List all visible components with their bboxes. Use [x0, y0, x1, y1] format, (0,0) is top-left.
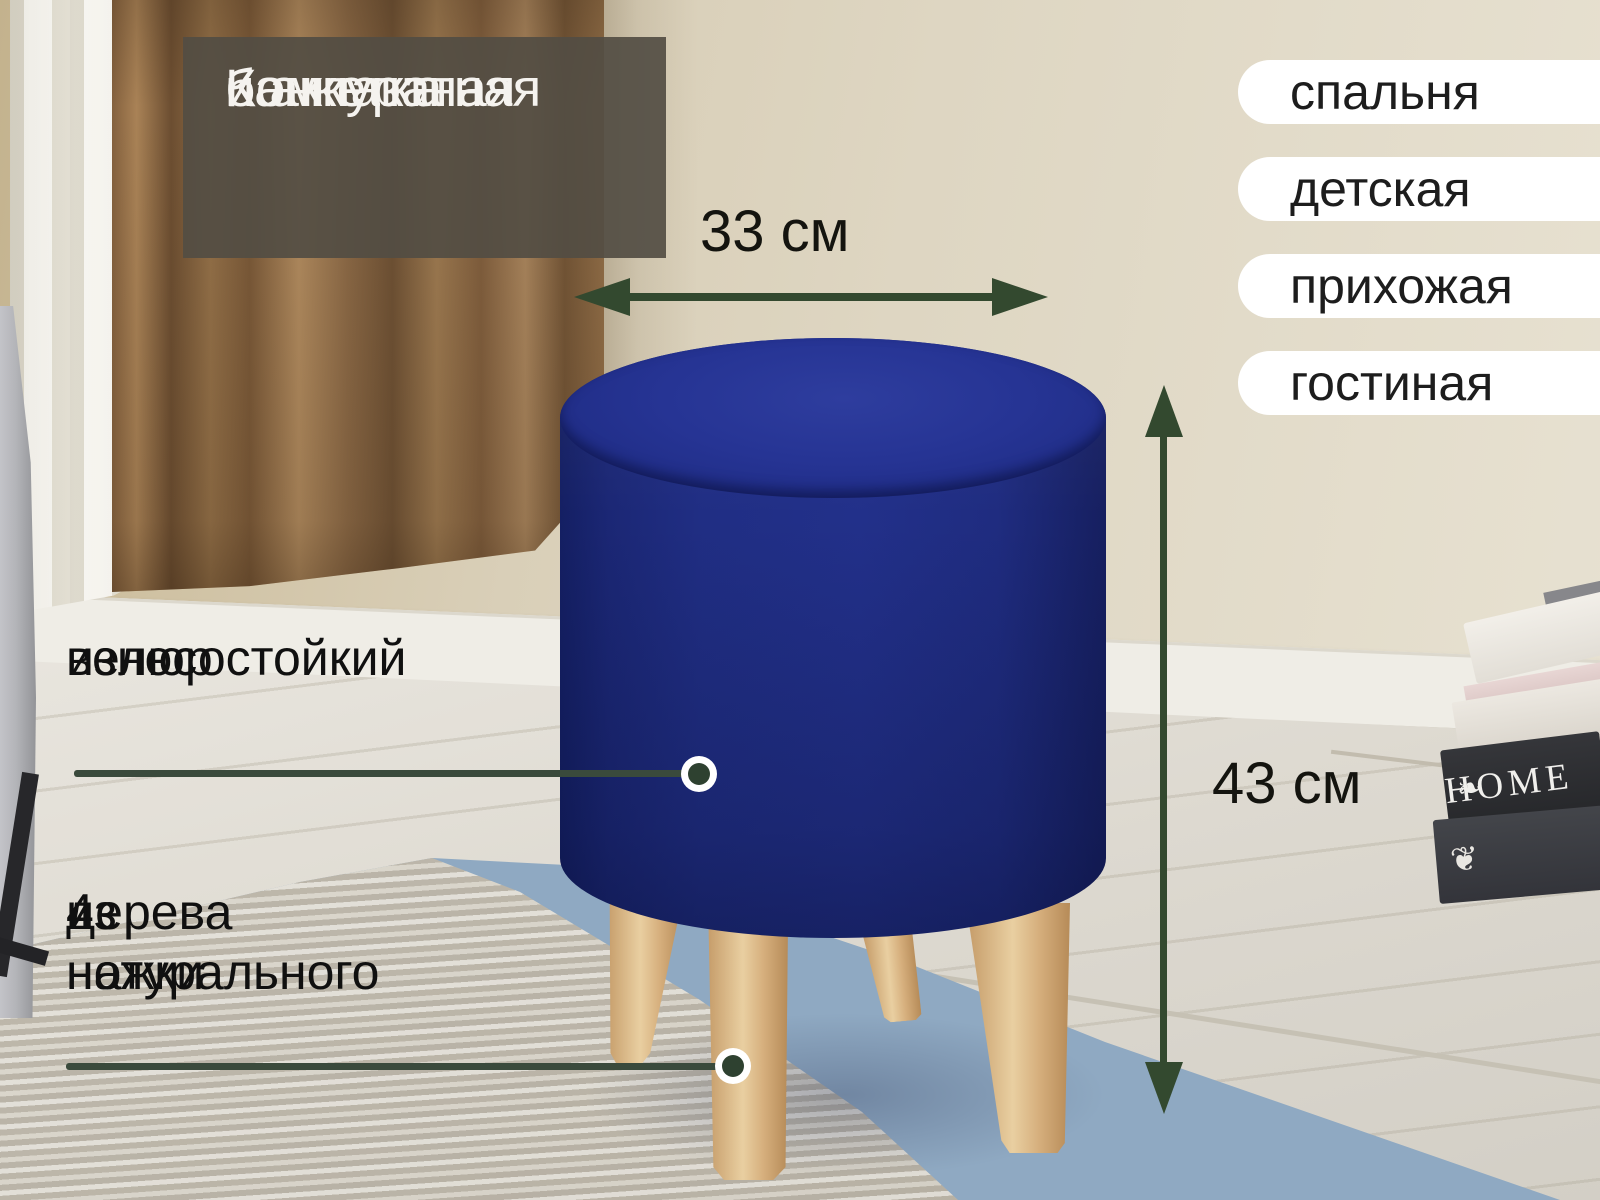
- floral-ornament-icon: ❦: [1449, 839, 1481, 881]
- book-dark: ❦: [1433, 806, 1600, 904]
- width-arrow-right-head: [992, 278, 1048, 316]
- height-arrow-top-head: [1145, 385, 1183, 437]
- height-arrow-bottom-head: [1145, 1062, 1183, 1114]
- room-tag-kids: детская: [1238, 157, 1600, 221]
- height-dimension-label: 43 см: [1212, 750, 1362, 817]
- fabric-feature-line: велюр: [66, 628, 213, 688]
- height-arrow-line: [1160, 428, 1167, 1068]
- book-spine-title: HOME: [1442, 754, 1575, 812]
- legs-feature-line: дерева: [66, 882, 232, 942]
- room-tag-hallway: прихожая: [1238, 254, 1600, 318]
- room-tag-bedroom: спальня: [1238, 60, 1600, 124]
- width-arrow-left-head: [574, 278, 630, 316]
- fabric-callout-line: [74, 770, 700, 777]
- title-line: банкетка: [225, 53, 443, 124]
- width-dimension-label: 33 см: [700, 198, 850, 265]
- legs-callout-line: [66, 1063, 734, 1070]
- room-tag-livingroom: гостиная: [1238, 351, 1600, 415]
- ottoman-seat-top: [560, 338, 1106, 498]
- title-overlay: Компактная и аккуратная банкетка: [183, 37, 666, 258]
- product-card: ❧ HOME ❦ 33 см 43 см износостойкий велюр…: [0, 0, 1600, 1200]
- width-arrow-line: [626, 293, 996, 301]
- ottoman-leg-front-left: [706, 922, 788, 1180]
- legs-callout-dot: [715, 1048, 751, 1084]
- fabric-callout-dot: [681, 756, 717, 792]
